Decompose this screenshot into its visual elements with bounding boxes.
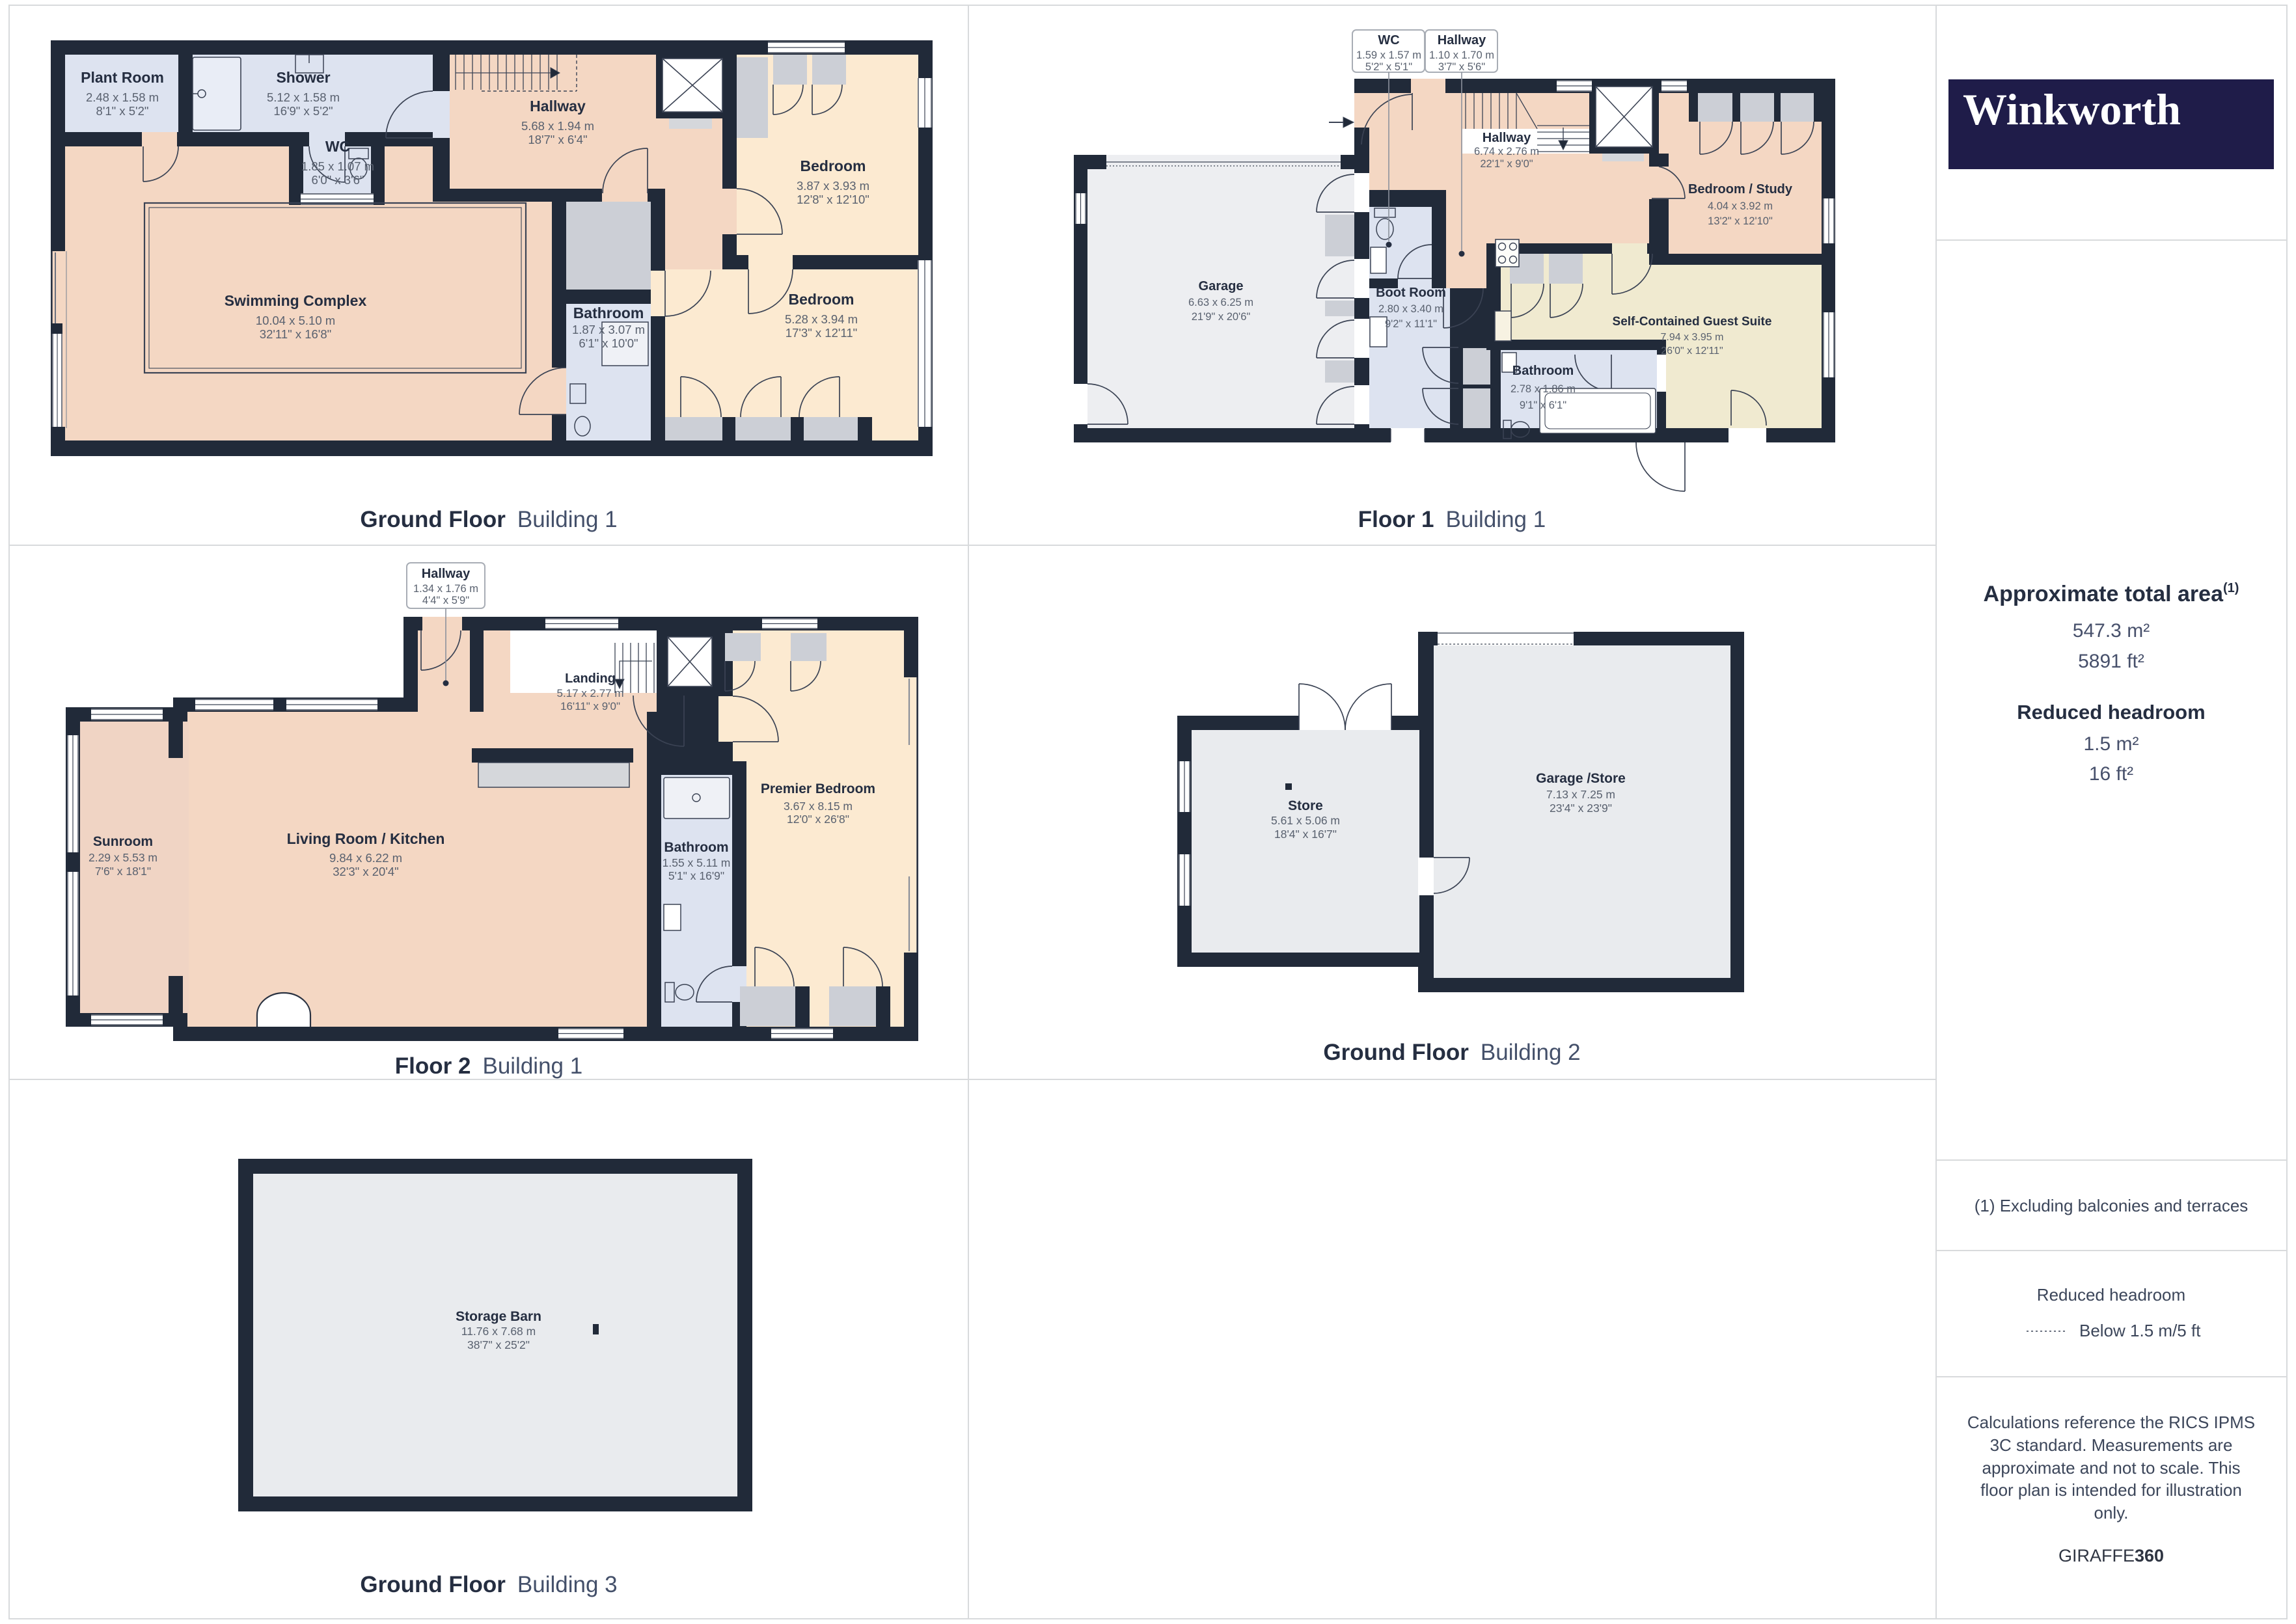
svg-text:5.61 x 5.06 m: 5.61 x 5.06 m <box>1271 814 1340 827</box>
svg-text:16 ft²: 16 ft² <box>2089 763 2133 785</box>
svg-text:18'7" x 6'4": 18'7" x 6'4" <box>528 133 587 146</box>
svg-text:Winkworth: Winkworth <box>1963 85 2181 134</box>
svg-text:2.80 x 3.40 m: 2.80 x 3.40 m <box>1378 303 1443 315</box>
svg-text:Calculations reference the RIC: Calculations reference the RICS IPMS <box>1967 1413 2255 1432</box>
svg-text:Ground FloorBuilding 1: Ground FloorBuilding 1 <box>360 507 617 532</box>
svg-text:26'0" x 12'11": 26'0" x 12'11" <box>1661 345 1723 357</box>
svg-text:5.17 x 2.77 m: 5.17 x 2.77 m <box>556 687 623 699</box>
svg-text:Landing: Landing <box>565 671 616 686</box>
svg-text:Bedroom: Bedroom <box>789 291 854 308</box>
svg-text:Bathroom: Bathroom <box>664 840 728 855</box>
svg-text:2.29 x 5.53 m: 2.29 x 5.53 m <box>89 851 157 864</box>
svg-text:Garage: Garage <box>1199 279 1244 293</box>
svg-text:Hallway: Hallway <box>530 98 586 115</box>
svg-text:21'9" x 20'6": 21'9" x 20'6" <box>1192 311 1251 323</box>
svg-text:5.12 x 1.58 m: 5.12 x 1.58 m <box>267 90 340 104</box>
svg-text:16'9" x 5'2": 16'9" x 5'2" <box>273 104 333 118</box>
svg-text:11.76 x 7.68 m: 11.76 x 7.68 m <box>461 1325 536 1338</box>
svg-text:1.34 x 1.76 m: 1.34 x 1.76 m <box>413 583 478 595</box>
svg-text:5'1" x 16'9": 5'1" x 16'9" <box>668 869 724 882</box>
svg-text:Reduced headroom: Reduced headroom <box>2017 701 2205 724</box>
svg-text:1.5 m²: 1.5 m² <box>2083 733 2139 755</box>
svg-text:16'11" x 9'0": 16'11" x 9'0" <box>560 700 620 712</box>
svg-text:5.28 x 3.94 m: 5.28 x 3.94 m <box>785 312 858 326</box>
svg-text:Living Room / Kitchen: Living Room / Kitchen <box>287 830 445 847</box>
svg-text:Self-Contained Guest Suite: Self-Contained Guest Suite <box>1613 315 1772 329</box>
svg-text:WC: WC <box>1378 33 1399 47</box>
svg-text:547.3 m²: 547.3 m² <box>2073 620 2150 642</box>
svg-text:12'0" x 26'8": 12'0" x 26'8" <box>787 813 849 826</box>
svg-text:floor plan is intended for ill: floor plan is intended for illustration <box>1980 1480 2242 1500</box>
svg-text:17'3" x 12'11": 17'3" x 12'11" <box>786 326 857 340</box>
svg-text:Premier Bedroom: Premier Bedroom <box>761 781 875 796</box>
svg-text:13'2" x 12'10": 13'2" x 12'10" <box>1708 215 1773 227</box>
svg-text:32'3" x 20'4": 32'3" x 20'4" <box>333 865 398 878</box>
svg-text:3'7" x 5'6": 3'7" x 5'6" <box>1438 61 1485 73</box>
svg-text:3.67 x 8.15 m: 3.67 x 8.15 m <box>784 800 853 813</box>
svg-text:Bedroom: Bedroom <box>800 157 866 174</box>
svg-text:Ground FloorBuilding 2: Ground FloorBuilding 2 <box>1323 1040 1580 1065</box>
svg-text:1.87 x 3.07 m: 1.87 x 3.07 m <box>572 323 645 336</box>
svg-text:Garage /Store: Garage /Store <box>1536 771 1626 786</box>
svg-text:22'1" x 9'0": 22'1" x 9'0" <box>1480 158 1533 170</box>
svg-text:1.59 x 1.57 m: 1.59 x 1.57 m <box>1356 49 1421 61</box>
svg-text:(1) Excluding balconies and te: (1) Excluding balconies and terraces <box>1975 1196 2248 1215</box>
svg-text:2.48 x 1.58 m: 2.48 x 1.58 m <box>86 90 159 104</box>
svg-text:9.84 x 6.22 m: 9.84 x 6.22 m <box>329 851 402 865</box>
svg-text:38'7" x 25'2": 38'7" x 25'2" <box>467 1338 530 1351</box>
svg-text:5.68 x 1.94 m: 5.68 x 1.94 m <box>521 119 594 133</box>
svg-text:7.94 x 3.95 m: 7.94 x 3.95 m <box>1661 332 1724 343</box>
svg-text:Bathroom: Bathroom <box>1512 364 1574 378</box>
svg-text:Below 1.5 m/5 ft: Below 1.5 m/5 ft <box>2079 1321 2201 1340</box>
svg-text:GIRAFFE360: GIRAFFE360 <box>2058 1546 2164 1565</box>
svg-text:Boot Room: Boot Room <box>1376 286 1446 300</box>
svg-text:Hallway: Hallway <box>1483 131 1531 145</box>
svg-text:only.: only. <box>2094 1503 2129 1522</box>
svg-text:6'0" x 3'6": 6'0" x 3'6" <box>312 173 364 187</box>
svg-text:6.74 x 2.76 m: 6.74 x 2.76 m <box>1474 146 1539 157</box>
svg-text:2.78 x 1.86 m: 2.78 x 1.86 m <box>1510 383 1576 395</box>
svg-text:Bedroom / Study: Bedroom / Study <box>1688 182 1793 196</box>
svg-text:3C standard. Measurements are: 3C standard. Measurements are <box>1990 1435 2233 1455</box>
svg-text:32'11" x 16'8": 32'11" x 16'8" <box>260 327 331 341</box>
svg-text:5891 ft²: 5891 ft² <box>2078 651 2144 672</box>
svg-text:Floor 2Building 1: Floor 2Building 1 <box>395 1053 582 1079</box>
svg-text:7.13 x 7.25 m: 7.13 x 7.25 m <box>1546 788 1615 801</box>
svg-text:Approximate total area(1): Approximate total area(1) <box>1984 581 2239 606</box>
svg-text:18'4" x 16'7": 18'4" x 16'7" <box>1274 828 1337 841</box>
svg-text:6'1" x 10'0": 6'1" x 10'0" <box>579 336 638 350</box>
svg-text:Store: Store <box>1288 798 1323 813</box>
svg-text:approximate and not to scale.: approximate and not to scale. This <box>1982 1458 2241 1478</box>
svg-text:3.87 x 3.93 m: 3.87 x 3.93 m <box>797 179 869 193</box>
svg-text:7'6" x 18'1": 7'6" x 18'1" <box>95 865 151 878</box>
svg-text:1.85 x 1.07 m: 1.85 x 1.07 m <box>301 159 374 173</box>
svg-text:10.04 x 5.10 m: 10.04 x 5.10 m <box>256 314 335 327</box>
svg-text:12'8" x 12'10": 12'8" x 12'10" <box>797 193 869 206</box>
svg-text:WC: WC <box>325 138 350 155</box>
svg-text:1.55 x 5.11 m: 1.55 x 5.11 m <box>663 856 731 869</box>
svg-text:6.63 x 6.25 m: 6.63 x 6.25 m <box>1188 297 1253 308</box>
svg-text:5'2" x 5'1": 5'2" x 5'1" <box>1365 61 1412 73</box>
svg-text:Bathroom: Bathroom <box>573 304 644 321</box>
svg-text:9'2" x 11'1": 9'2" x 11'1" <box>1385 318 1437 330</box>
svg-text:Plant Room: Plant Room <box>81 69 164 86</box>
svg-text:Sunroom: Sunroom <box>93 834 153 849</box>
svg-text:Shower: Shower <box>276 69 330 86</box>
svg-text:Reduced headroom: Reduced headroom <box>2037 1285 2185 1305</box>
svg-text:1.10 x 1.70 m: 1.10 x 1.70 m <box>1429 49 1494 61</box>
svg-text:Hallway: Hallway <box>1438 33 1486 47</box>
svg-text:9'1" x 6'1": 9'1" x 6'1" <box>1520 399 1566 411</box>
svg-text:Ground FloorBuilding 3: Ground FloorBuilding 3 <box>360 1572 617 1597</box>
svg-text:Storage Barn: Storage Barn <box>456 1309 541 1324</box>
svg-text:Hallway: Hallway <box>422 567 471 581</box>
svg-text:Swimming Complex: Swimming Complex <box>225 292 367 309</box>
svg-text:4.04 x 3.92 m: 4.04 x 3.92 m <box>1708 200 1773 212</box>
svg-text:Floor 1Building 1: Floor 1Building 1 <box>1358 507 1546 532</box>
svg-text:4'4" x 5'9": 4'4" x 5'9" <box>422 595 469 606</box>
svg-text:8'1" x 5'2": 8'1" x 5'2" <box>96 104 149 118</box>
svg-text:23'4" x 23'9": 23'4" x 23'9" <box>1550 802 1612 815</box>
